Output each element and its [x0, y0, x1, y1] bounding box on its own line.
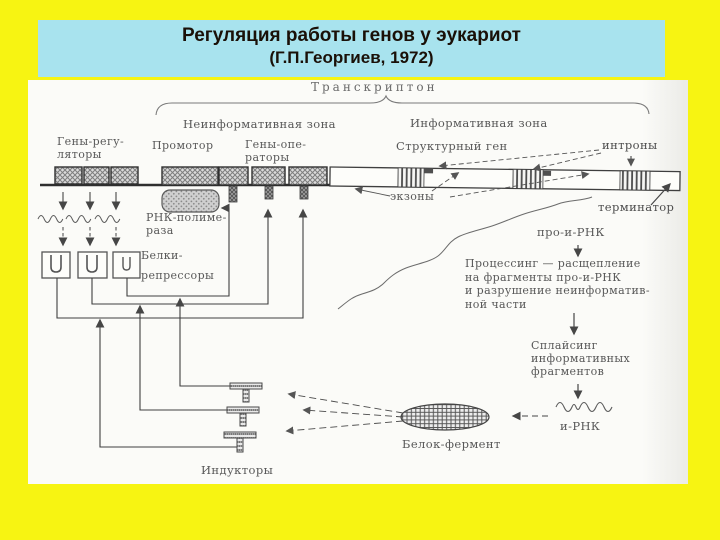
label-mrna: и-РНК	[560, 420, 600, 433]
label-protein-enzyme: Белок-фермент	[402, 438, 501, 451]
operator-binding-tabs	[229, 186, 308, 202]
label-transcripton: Транскриптон	[311, 81, 438, 94]
label-noninformative-zone: Неинформативная зона	[183, 118, 336, 131]
label-repressor-proteins: Белки- репрессоры	[141, 246, 214, 286]
intron-segment	[398, 168, 424, 187]
label-pro-mrna: про-и-РНК	[537, 226, 605, 239]
regulator-mrna-wavies	[38, 216, 120, 223]
transcripton-brace	[156, 96, 649, 115]
rna-polymerase-box	[162, 190, 219, 212]
repressor-protein-boxes	[42, 252, 140, 278]
label-structural-gene: Структурный ген	[396, 140, 508, 153]
label-inducers: Индукторы	[201, 464, 273, 477]
inducer-action-lines	[100, 299, 237, 447]
operator-gene-boxes	[219, 167, 327, 185]
structural-gene-bar	[330, 167, 680, 191]
label-informative-zone: Информативная зона	[410, 117, 548, 130]
regulator-gene-boxes	[55, 167, 138, 184]
regulator-transcription-arrows	[63, 192, 116, 209]
label-splicing: Сплайсинг информативных фрагментов	[531, 339, 630, 378]
mrna-strand	[556, 403, 612, 412]
translation-arrows	[63, 227, 116, 245]
promoter-box	[162, 167, 218, 185]
label-terminator: терминатор	[598, 201, 674, 214]
label-regulator-genes: Гены-регу- ляторы	[57, 135, 124, 161]
label-operator-genes: Гены-опе- раторы	[245, 138, 306, 164]
label-exons: экзоны	[390, 190, 434, 203]
label-introns: интроны	[602, 139, 658, 152]
label-rna-polymerase: РНК-полиме- раза	[146, 211, 227, 237]
protein-enzyme-ellipse	[401, 404, 489, 430]
enzyme-to-inducer-arrows	[287, 394, 403, 431]
label-processing: Процессинг — расщепление на фрагменты пр…	[465, 257, 650, 311]
inducer-molecules	[224, 383, 262, 452]
intron-segment	[620, 171, 650, 190]
label-promoter: Промотор	[152, 139, 213, 152]
slide: Регуляция работы генов у эукариот (Г.П.Г…	[0, 0, 720, 540]
